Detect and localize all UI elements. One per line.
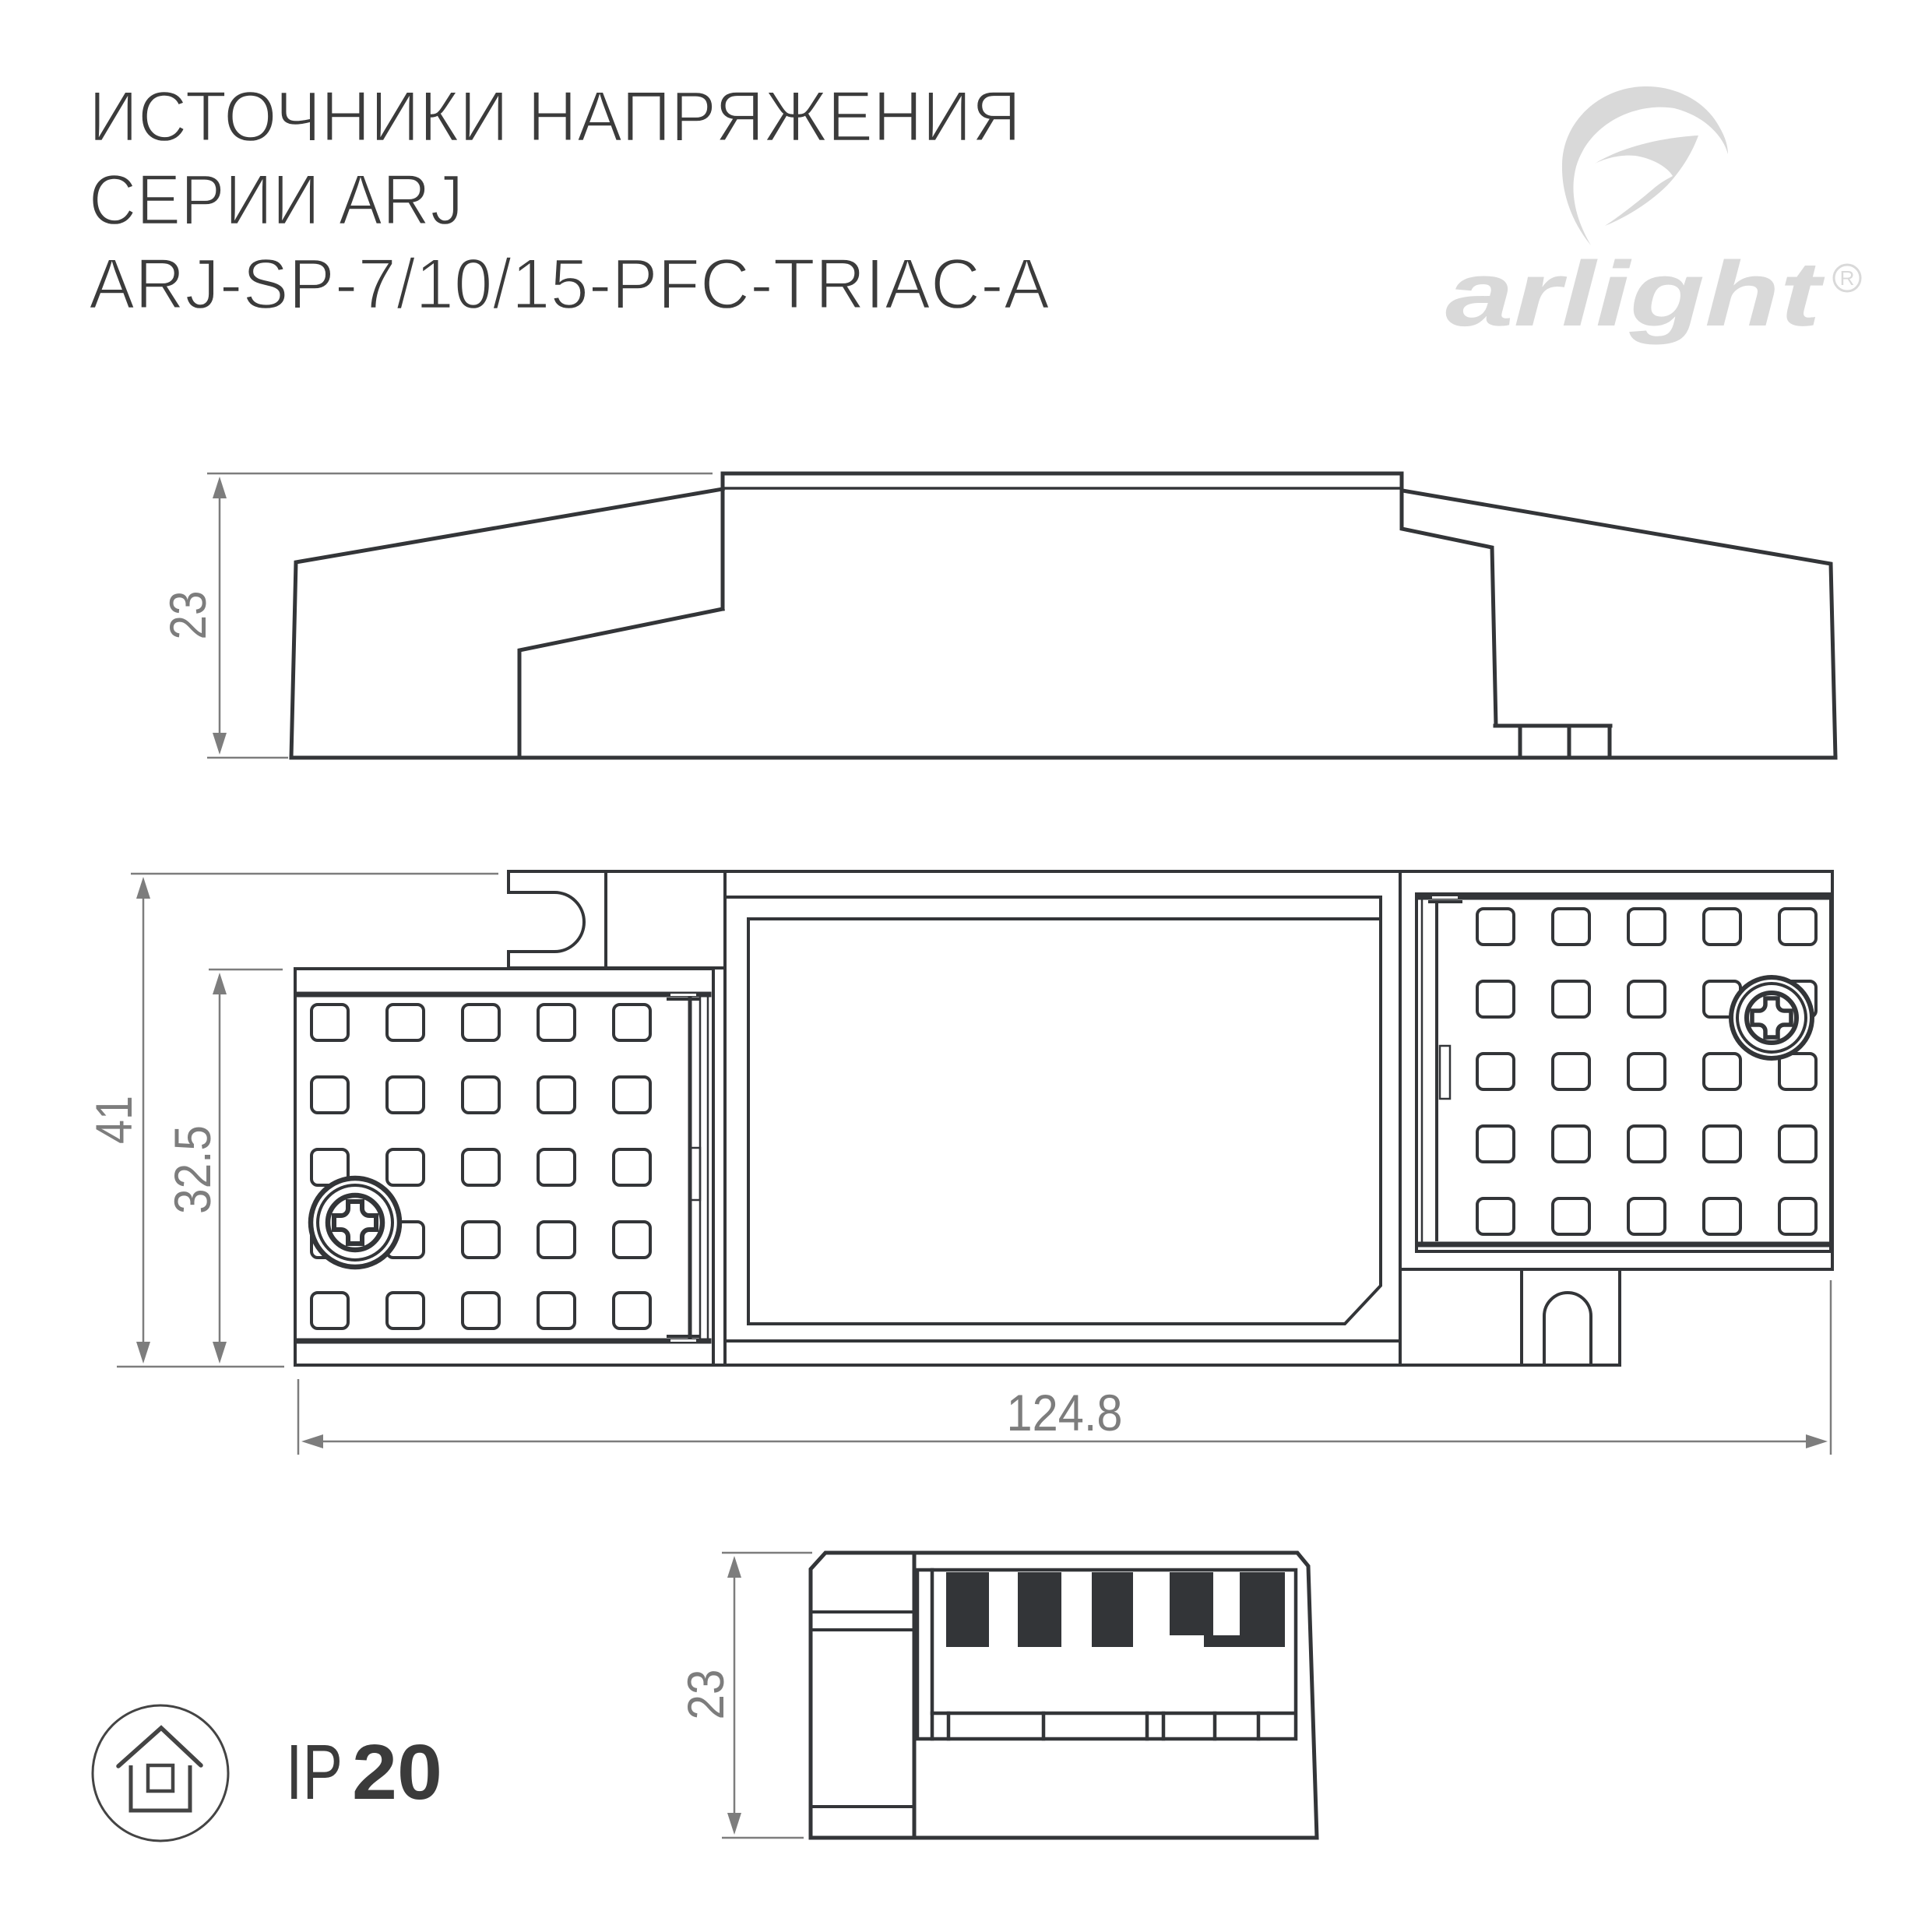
svg-text:124.8: 124.8 — [1007, 1384, 1123, 1441]
svg-text:R: R — [1840, 266, 1855, 290]
svg-text:41: 41 — [85, 1096, 143, 1144]
svg-text:ИСТОЧНИКИ НАПРЯЖЕНИЯ: ИСТОЧНИКИ НАПРЯЖЕНИЯ — [89, 77, 1021, 157]
svg-text:23: 23 — [159, 591, 216, 640]
svg-text:32.5: 32.5 — [164, 1125, 221, 1214]
svg-text:23: 23 — [677, 1670, 734, 1720]
svg-text:IP: IP — [286, 1729, 343, 1816]
svg-text:20: 20 — [352, 1729, 442, 1816]
svg-text:СЕРИИ ARJ: СЕРИИ ARJ — [89, 160, 463, 240]
svg-text:arlight: arlight — [1445, 243, 1825, 346]
svg-text:ARJ-SP-7/10/15-PFC-TRIAC-A: ARJ-SP-7/10/15-PFC-TRIAC-A — [89, 245, 1050, 324]
